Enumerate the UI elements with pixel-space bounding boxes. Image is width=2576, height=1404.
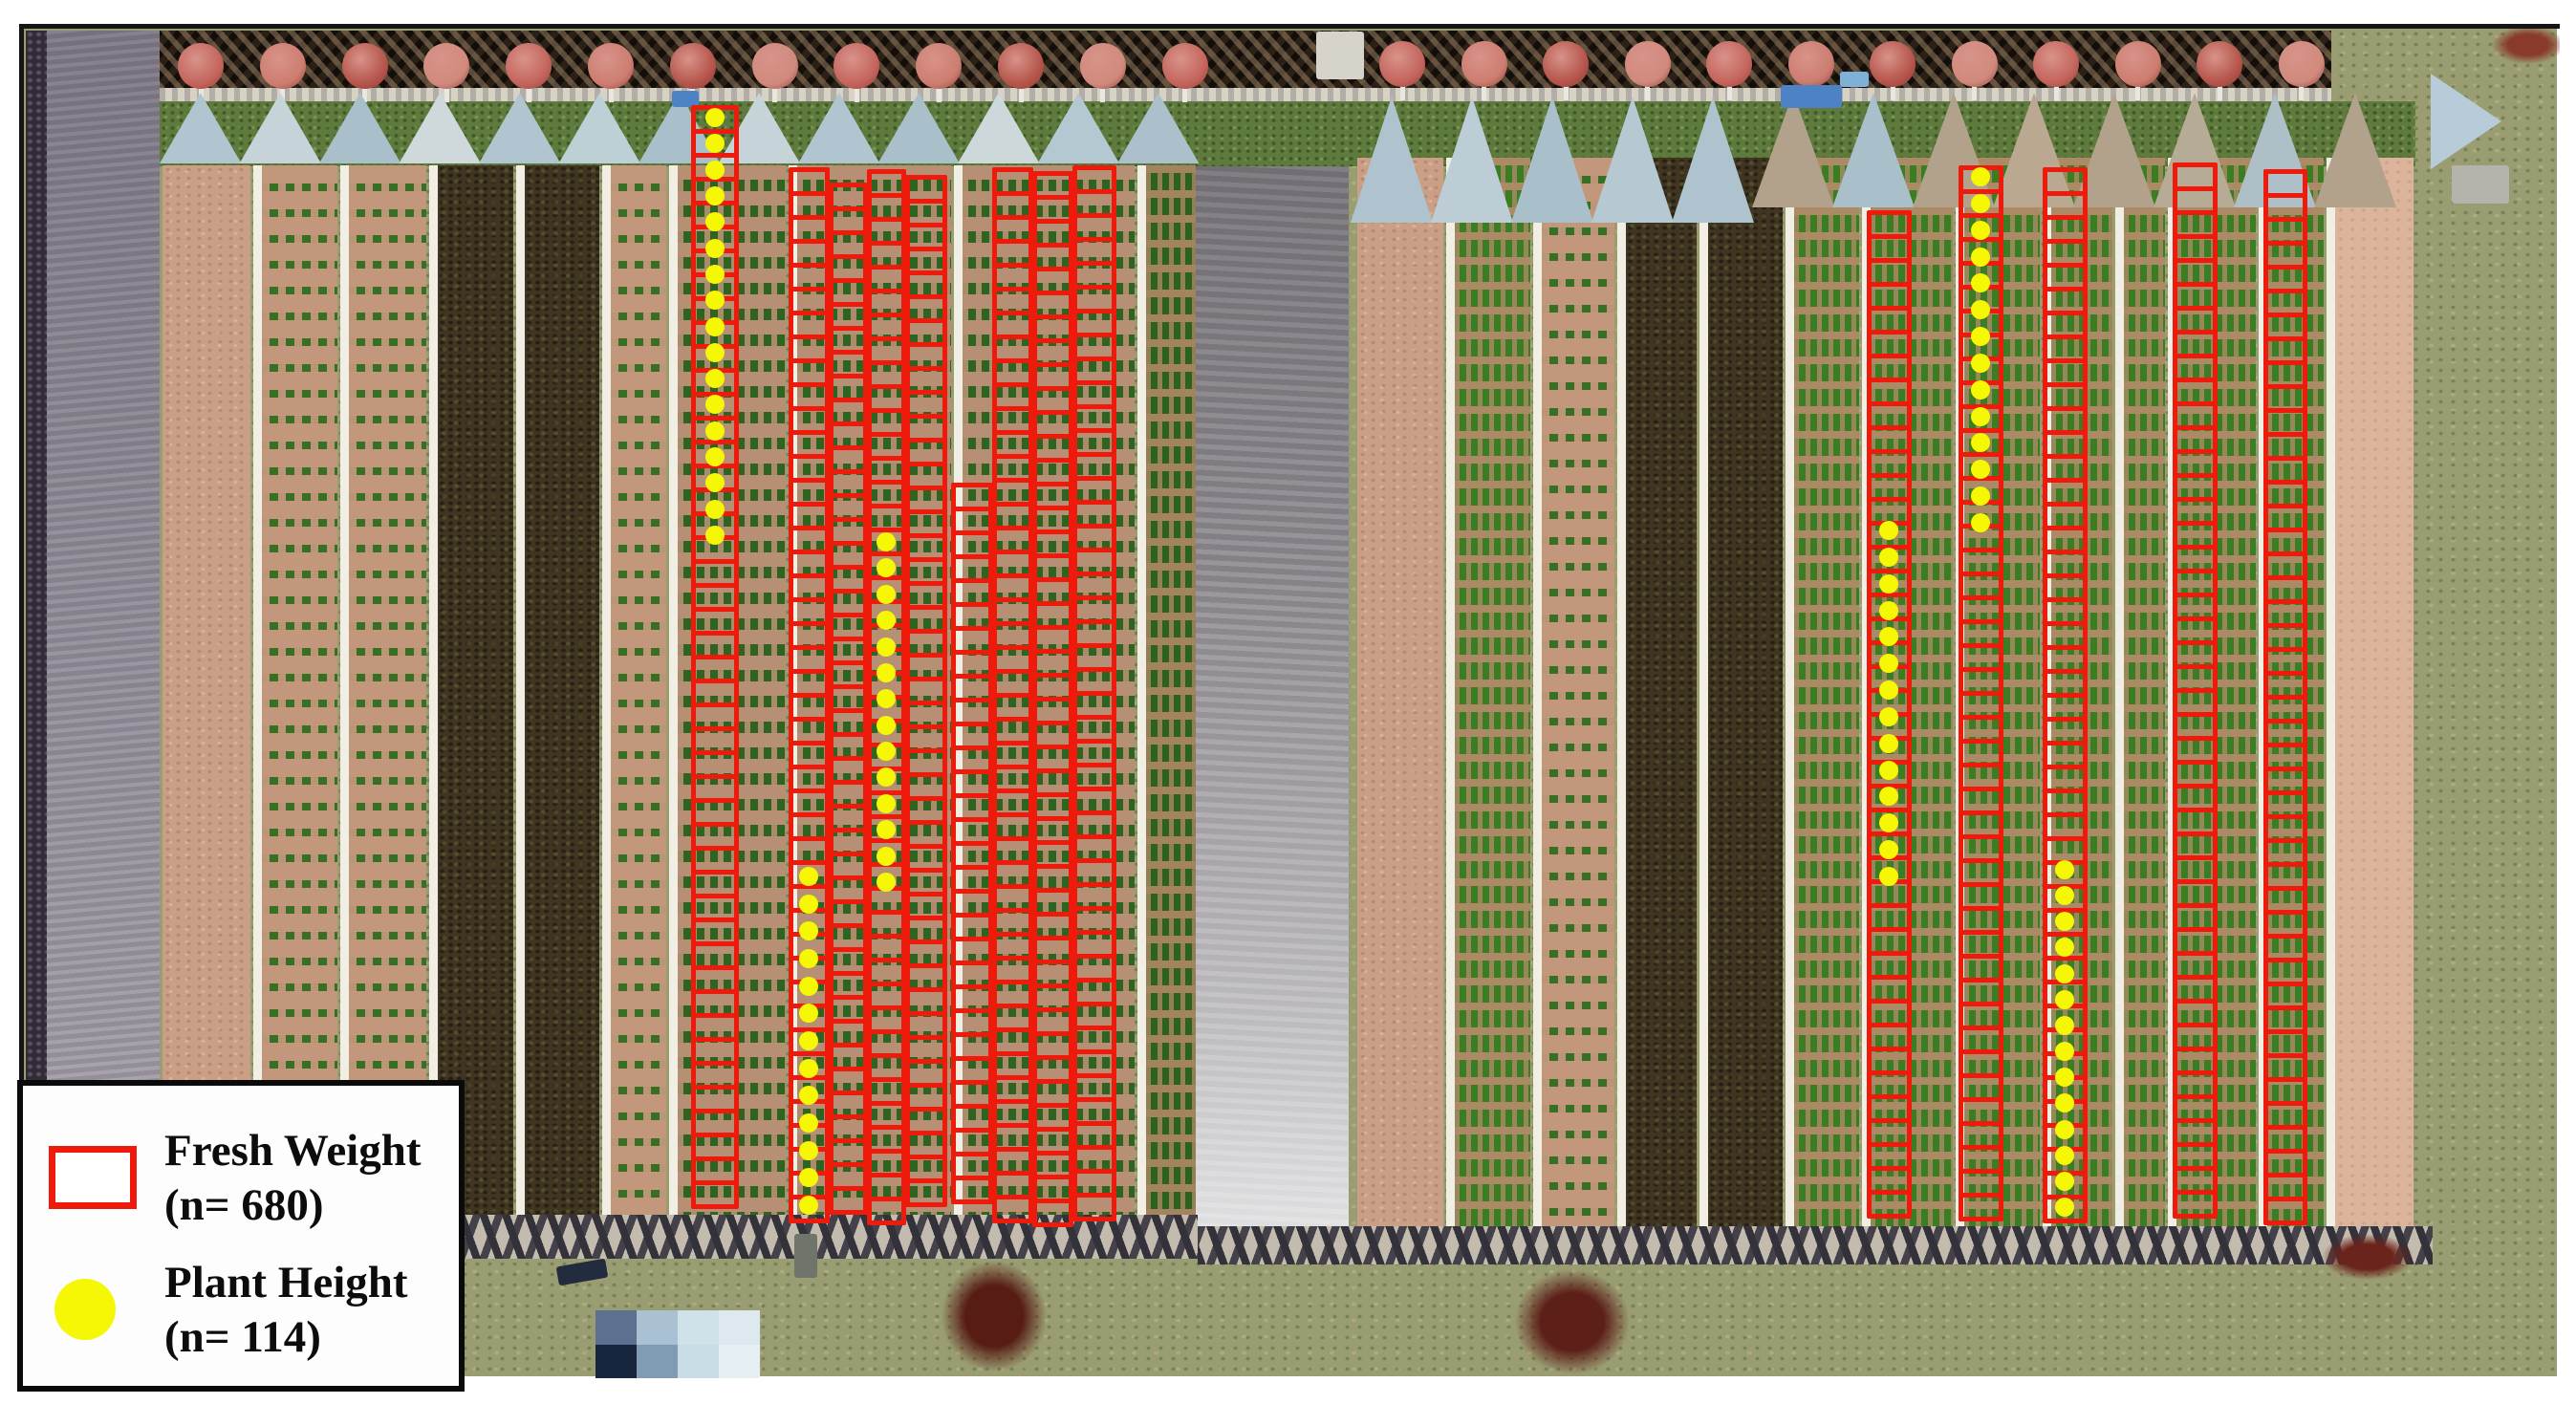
plant-height-dot	[1971, 486, 1990, 506]
right-field-crop-strip	[1533, 158, 1614, 1226]
person-shadow	[794, 1234, 817, 1278]
center-road	[1196, 31, 1349, 1230]
plant-height-dot	[2055, 964, 2074, 983]
plant-height-dot	[1879, 521, 1898, 540]
plant-height-dot	[705, 186, 725, 205]
plant-height-dot	[877, 847, 896, 866]
plant-height-dot	[2055, 1016, 2074, 1035]
plant-height-dot	[1879, 761, 1898, 780]
plant-height-dot	[877, 585, 896, 604]
plant-height-dot	[1971, 513, 1990, 532]
fresh-weight-box	[691, 1180, 739, 1209]
tree-canopy	[1461, 41, 1507, 87]
tree-canopy	[260, 43, 306, 89]
legend: Fresh Weight (n= 680) Plant Height (n= 1…	[17, 1080, 465, 1392]
plant-height-dot	[1879, 734, 1898, 753]
plant-height-dot	[877, 716, 896, 735]
plant-height-dot	[799, 949, 818, 968]
gray-patch	[2452, 165, 2509, 204]
plant-height-dot	[799, 1113, 818, 1133]
fresh-weight-box	[951, 1176, 993, 1204]
left-field-crop-strip	[516, 165, 599, 1217]
plant-height-dot	[705, 265, 725, 284]
plant-height-dot	[2055, 1146, 2074, 1165]
plant-height-dot	[877, 873, 896, 892]
maroon-bush-right	[2322, 1234, 2414, 1280]
plant-height-label: Plant Height	[164, 1256, 408, 1310]
plant-height-dot	[877, 794, 896, 813]
maroon-bush-left	[942, 1261, 1047, 1372]
tree-canopy	[506, 43, 552, 89]
plant-height-dot	[799, 1059, 818, 1078]
left-hedge	[26, 31, 47, 1220]
plant-height-dot	[1879, 548, 1898, 567]
fresh-weight-box	[905, 1178, 947, 1207]
radiometric-calibration-panel-cell	[678, 1345, 719, 1378]
fresh-weight-box	[1032, 1199, 1073, 1227]
plant-height-dot	[1971, 248, 1990, 267]
figure-canvas: Fresh Weight (n= 680) Plant Height (n= 1…	[0, 0, 2576, 1404]
plant-height-dot	[1879, 707, 1898, 726]
radiometric-calibration-panel-cell	[637, 1310, 678, 1345]
plant-height-dot	[705, 108, 725, 127]
plant-height-dot	[877, 611, 896, 630]
plant-height-dot	[1971, 194, 1990, 213]
tree-canopy	[1952, 41, 1998, 87]
plant-height-dot	[799, 867, 818, 886]
plant-height-dot	[1879, 680, 1898, 700]
maroon-bush-corner	[2492, 26, 2560, 64]
plant-height-dot	[1971, 167, 1990, 186]
legend-fresh-weight-text: Fresh Weight (n= 680)	[164, 1124, 422, 1233]
left-field-crop-strip	[602, 165, 666, 1217]
tree-canopy	[2197, 41, 2242, 87]
radiometric-calibration-panel-cell	[595, 1310, 637, 1345]
tree-canopy	[1706, 41, 1752, 87]
top-walkway	[160, 88, 2331, 102]
plant-height-dot	[1879, 601, 1898, 620]
plant-height-dot	[1879, 867, 1898, 886]
right-field-crop-strip	[1617, 158, 1697, 1226]
plant-height-dot	[799, 895, 818, 914]
fresh-weight-box	[992, 1195, 1033, 1223]
plant-height-dot	[877, 663, 896, 682]
tree-fence-strip	[160, 31, 2331, 90]
right-field-crop-strip	[1446, 158, 1530, 1226]
tree-canopy	[1870, 41, 1916, 87]
tree-canopy	[178, 43, 224, 89]
plant-height-dot	[799, 1141, 818, 1160]
plant-height-dot	[705, 369, 725, 388]
plant-height-dot	[799, 977, 818, 996]
tree-canopy	[752, 43, 798, 89]
radiometric-calibration-panel-cell	[637, 1345, 678, 1378]
plant-height-dot	[2055, 1120, 2074, 1139]
plant-height-dot	[799, 1031, 818, 1050]
legend-plant-height-text: Plant Height (n= 114)	[164, 1256, 408, 1365]
left-field-crop-strip	[429, 165, 513, 1217]
plant-height-dot	[705, 421, 725, 441]
tree-canopy	[998, 43, 1044, 89]
tree-canopy	[1379, 41, 1425, 87]
tree-canopy	[670, 43, 716, 89]
fresh-weight-box	[1867, 1190, 1912, 1219]
radiometric-calibration-panel-cell	[719, 1345, 760, 1378]
blue-tarp-light	[1840, 72, 1869, 87]
tree-canopy	[2115, 41, 2161, 87]
tree-canopy	[2033, 41, 2079, 87]
left-field-crop-strip	[162, 165, 250, 1217]
plant-height-dot	[877, 532, 896, 551]
tree-canopy	[1625, 41, 1671, 87]
tree-canopy	[916, 43, 962, 89]
plant-height-dot	[705, 526, 725, 545]
plant-height-dot	[1971, 221, 1990, 240]
plant-height-dot	[705, 343, 725, 362]
tree-canopy	[342, 43, 388, 89]
fresh-weight-box	[1959, 1193, 2003, 1221]
plant-height-dot	[1879, 574, 1898, 594]
fresh-weight-box	[2263, 1197, 2307, 1225]
maroon-bush-center	[1515, 1269, 1630, 1374]
radiometric-calibration-panel-cell	[595, 1345, 637, 1378]
plant-height-dot	[1971, 407, 1990, 426]
plant-height-dot	[2055, 860, 2074, 879]
left-field-crop-strip	[1137, 165, 1196, 1217]
fresh-weight-count: (n= 680)	[164, 1178, 422, 1233]
plant-height-dot	[705, 239, 725, 258]
plant-height-dot	[705, 317, 725, 336]
right-field-crop-strip	[1786, 158, 1859, 1226]
plant-height-dot	[877, 742, 896, 761]
plant-height-dot	[1971, 327, 1990, 346]
fresh-weight-box	[829, 1186, 868, 1215]
plant-height-dot	[705, 500, 725, 519]
fresh-weight-box	[1072, 1193, 1116, 1221]
plant-height-dot	[2055, 1042, 2074, 1061]
right-field-crop-strip	[2327, 158, 2414, 1226]
fresh-weight-box	[2173, 1190, 2218, 1219]
plant-height-dot	[877, 637, 896, 657]
plant-height-dot	[2055, 1198, 2074, 1217]
tree-canopy	[1080, 43, 1126, 89]
tree-canopy	[1543, 41, 1589, 87]
plant-height-dot	[705, 161, 725, 180]
left-field-crop-strip	[253, 165, 337, 1217]
left-road	[47, 31, 160, 1220]
plant-height-dot	[1879, 840, 1898, 859]
gate-shed	[1316, 32, 1364, 79]
left-field-crop-strip	[340, 165, 426, 1217]
fresh-weight-symbol	[49, 1146, 137, 1209]
tree-canopy	[588, 43, 634, 89]
plant-height-count: (n= 114)	[164, 1310, 408, 1365]
right-field-crop-strip	[1699, 158, 1783, 1226]
gravel-strip-right	[1198, 1226, 2433, 1264]
plant-height-dot	[2055, 886, 2074, 905]
tree-canopy	[1788, 41, 1834, 87]
fresh-weight-box	[867, 1197, 906, 1225]
radiometric-calibration-panel-cell	[678, 1310, 719, 1345]
blue-tarp-large	[1781, 85, 1842, 108]
plant-height-symbol	[54, 1279, 116, 1340]
plant-height-dot	[1971, 354, 1990, 373]
right-field-crop-strip	[2115, 158, 2165, 1226]
radiometric-calibration-panel-cell	[719, 1310, 760, 1345]
tree-canopy	[1162, 43, 1208, 89]
plant-height-dot	[2055, 990, 2074, 1009]
plant-height-dot	[2055, 1172, 2074, 1191]
plant-height-dot	[1971, 380, 1990, 400]
fresh-weight-label: Fresh Weight	[164, 1124, 422, 1178]
right-field-crop-strip	[1357, 158, 1443, 1226]
tree-canopy	[2279, 41, 2325, 87]
plant-height-dot	[705, 447, 725, 466]
plant-height-dot	[799, 1196, 818, 1215]
